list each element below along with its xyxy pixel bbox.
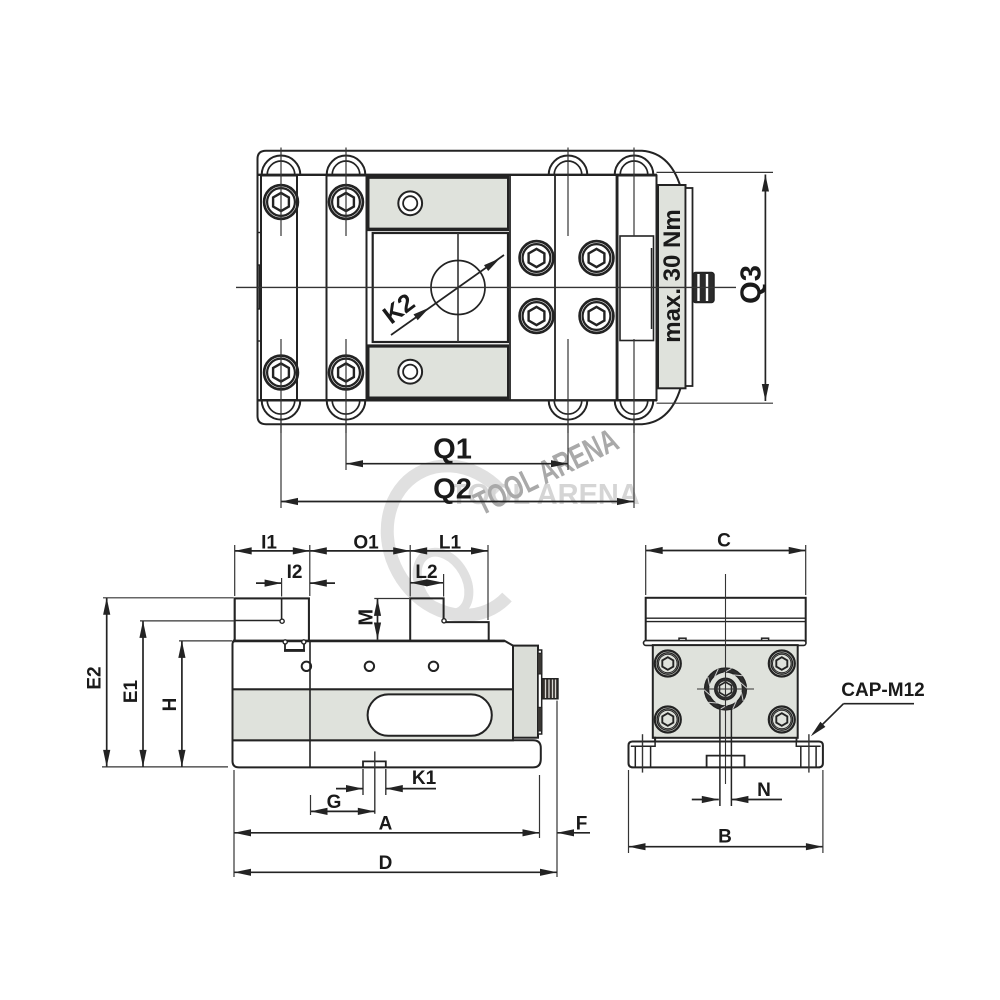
svg-text:CAP-M12: CAP-M12 (841, 680, 924, 701)
svg-text:D: D (379, 853, 393, 874)
svg-text:E2: E2 (85, 666, 106, 689)
svg-text:A: A (379, 814, 393, 835)
svg-text:N: N (757, 780, 771, 801)
svg-text:K1: K1 (412, 768, 437, 789)
svg-text:max. 30 Nm: max. 30 Nm (659, 209, 686, 342)
svg-text:L1: L1 (439, 533, 462, 554)
svg-text:G: G (327, 792, 342, 813)
svg-text:O1: O1 (353, 533, 379, 554)
svg-text:Q3: Q3 (736, 265, 768, 304)
svg-text:H: H (160, 698, 181, 712)
svg-text:Q2: Q2 (433, 474, 472, 506)
svg-text:C: C (717, 531, 731, 552)
svg-text:B: B (718, 827, 732, 848)
svg-text:E1: E1 (121, 679, 142, 703)
svg-text:Q1: Q1 (433, 434, 472, 466)
svg-text:L2: L2 (415, 562, 437, 583)
svg-text:F: F (576, 814, 588, 835)
svg-text:I1: I1 (261, 533, 277, 554)
svg-text:I2: I2 (287, 562, 303, 583)
svg-text:M: M (356, 609, 378, 626)
